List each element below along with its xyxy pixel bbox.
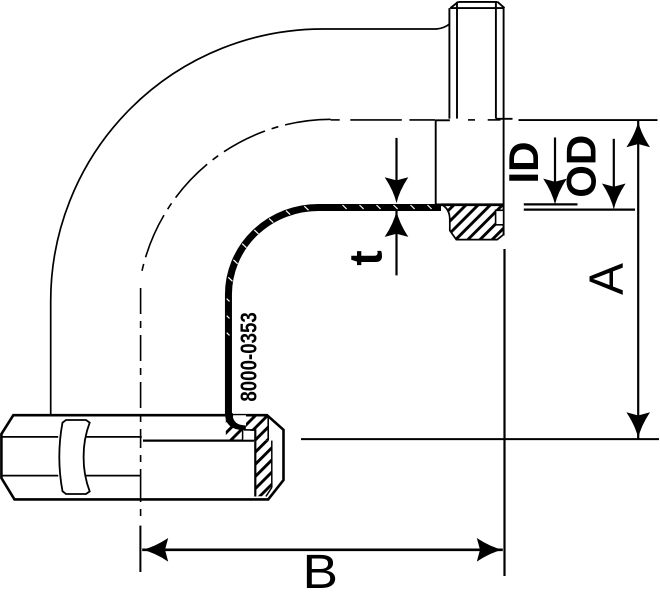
svg-text:A: A (581, 263, 634, 295)
svg-text:8000-0353: 8000-0353 (236, 312, 262, 402)
svg-text:ID: ID (500, 142, 547, 184)
svg-text:OD: OD (558, 135, 605, 198)
svg-text:t: t (340, 250, 392, 265)
svg-text:B: B (303, 546, 339, 599)
